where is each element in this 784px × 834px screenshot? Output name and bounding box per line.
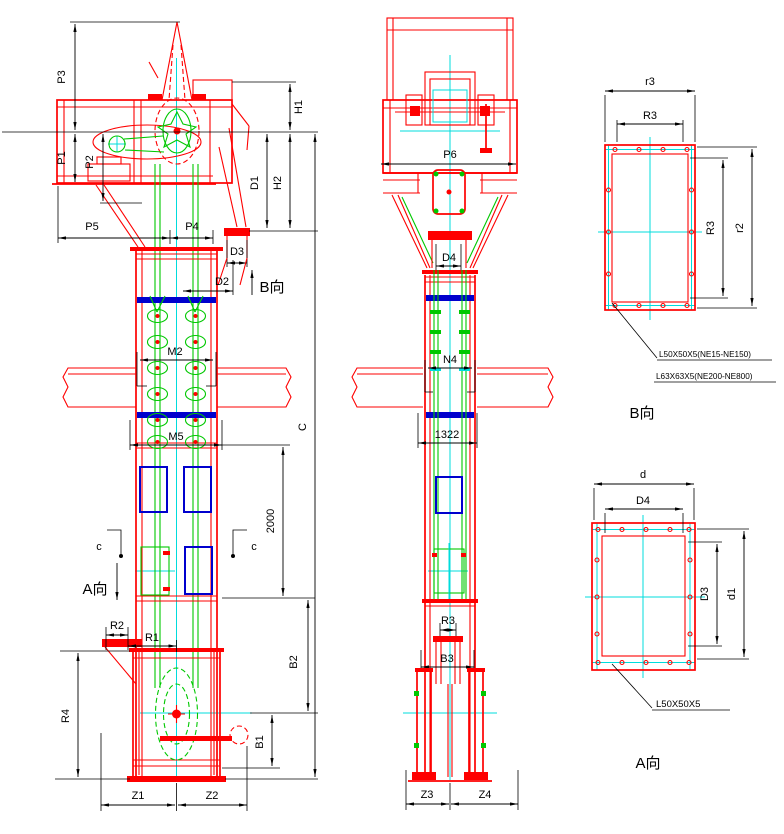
dim-label-r4: R4 [60, 709, 72, 723]
head-pulley [93, 98, 201, 164]
inspection-door [436, 477, 462, 513]
dim-label-d-outer: d [640, 469, 646, 481]
dim-label-1322: 1322 [435, 429, 459, 441]
section-a-view: d D4 D3 d1 L50X50X5 A向 [585, 469, 749, 772]
dim-label-b3: B3 [440, 653, 453, 665]
dim-label-d2: D2 [215, 276, 229, 288]
dim-label-h1: H1 [293, 100, 305, 114]
section-c-mark-right: c [251, 541, 257, 553]
dim-label-d1-side: d1 [726, 588, 738, 600]
casing-joint-band [426, 295, 474, 301]
dim-label-p6: P6 [443, 149, 456, 161]
dim-label-m2: M2 [167, 346, 182, 358]
boot-front [127, 648, 248, 782]
head-pulley-side [433, 170, 465, 214]
dim-label-d3-side: D3 [699, 587, 711, 601]
casing-joint-band [137, 297, 216, 303]
dim-label-r3-side: R3 [441, 615, 455, 627]
dim-label-r2: R2 [110, 620, 124, 632]
dim-label-r3-side: R3 [705, 221, 717, 235]
angle-steel-note-2: L63X63X5(NE200-NE800) [656, 372, 753, 381]
dim-label-z1: Z1 [132, 790, 145, 802]
angle-steel-note: L50X50X5 [656, 699, 700, 710]
takeup-wheel [230, 726, 248, 744]
dim-label-p4: P4 [185, 221, 198, 233]
section-b-title: B向 [629, 405, 654, 422]
section-b-view: r3 R3 R3 r2 L50X50X5(NE15-NE150) L63X63X… [598, 76, 776, 422]
section-c-mark-left: c [96, 541, 102, 553]
view-b-mark: B向 [259, 279, 284, 296]
side-elevation-view: P6 D4 [352, 18, 553, 810]
takeup-screw [433, 636, 463, 642]
dim-label-m5: M5 [168, 431, 183, 443]
dim-label-r3-outer: r3 [645, 76, 655, 88]
dim-label-2000: 2000 [265, 509, 277, 533]
casing-joint-band [426, 412, 474, 418]
dim-label-r3-top: R3 [643, 110, 657, 122]
dim-label-b2: B2 [288, 655, 300, 668]
dim-label-r1: R1 [145, 632, 159, 644]
inspection-door [140, 467, 167, 512]
dim-label-z2: Z2 [206, 790, 219, 802]
dim-label-d4-top: D4 [636, 495, 650, 507]
front-elevation-view: P3 P1 P2 P5 P4 D3 D2 [2, 22, 318, 811]
dim-label-z3: Z3 [421, 789, 434, 801]
head-housing [52, 80, 249, 227]
bucket-elevator-drawing: P3 P1 P2 P5 P4 D3 D2 [0, 0, 784, 834]
dim-label-p2: P2 [84, 155, 96, 168]
view-a-mark: A向 [82, 581, 107, 598]
dim-label-z4: Z4 [479, 789, 492, 801]
dim-label-h2: H2 [272, 176, 284, 190]
dim-label-p5: P5 [85, 221, 98, 233]
dim-label-d4: D4 [442, 252, 456, 264]
dim-label-n4: N4 [443, 354, 457, 366]
dim-label-b1: B1 [254, 735, 266, 748]
dim-label-d1: D1 [249, 176, 261, 190]
dim-label-p3: P3 [56, 70, 68, 83]
section-a-title: A向 [635, 755, 660, 772]
dim-label-c: C [297, 423, 309, 431]
takeup-arm [160, 736, 232, 741]
dim-label-d3: D3 [230, 246, 244, 258]
lifting-mast [149, 22, 192, 100]
dim-label-r2-side: r2 [734, 223, 746, 233]
discharge-spout [224, 228, 250, 236]
dim-label-p1: P1 [56, 151, 68, 164]
angle-steel-note-1: L50X50X5(NE15-NE150) [659, 350, 751, 359]
